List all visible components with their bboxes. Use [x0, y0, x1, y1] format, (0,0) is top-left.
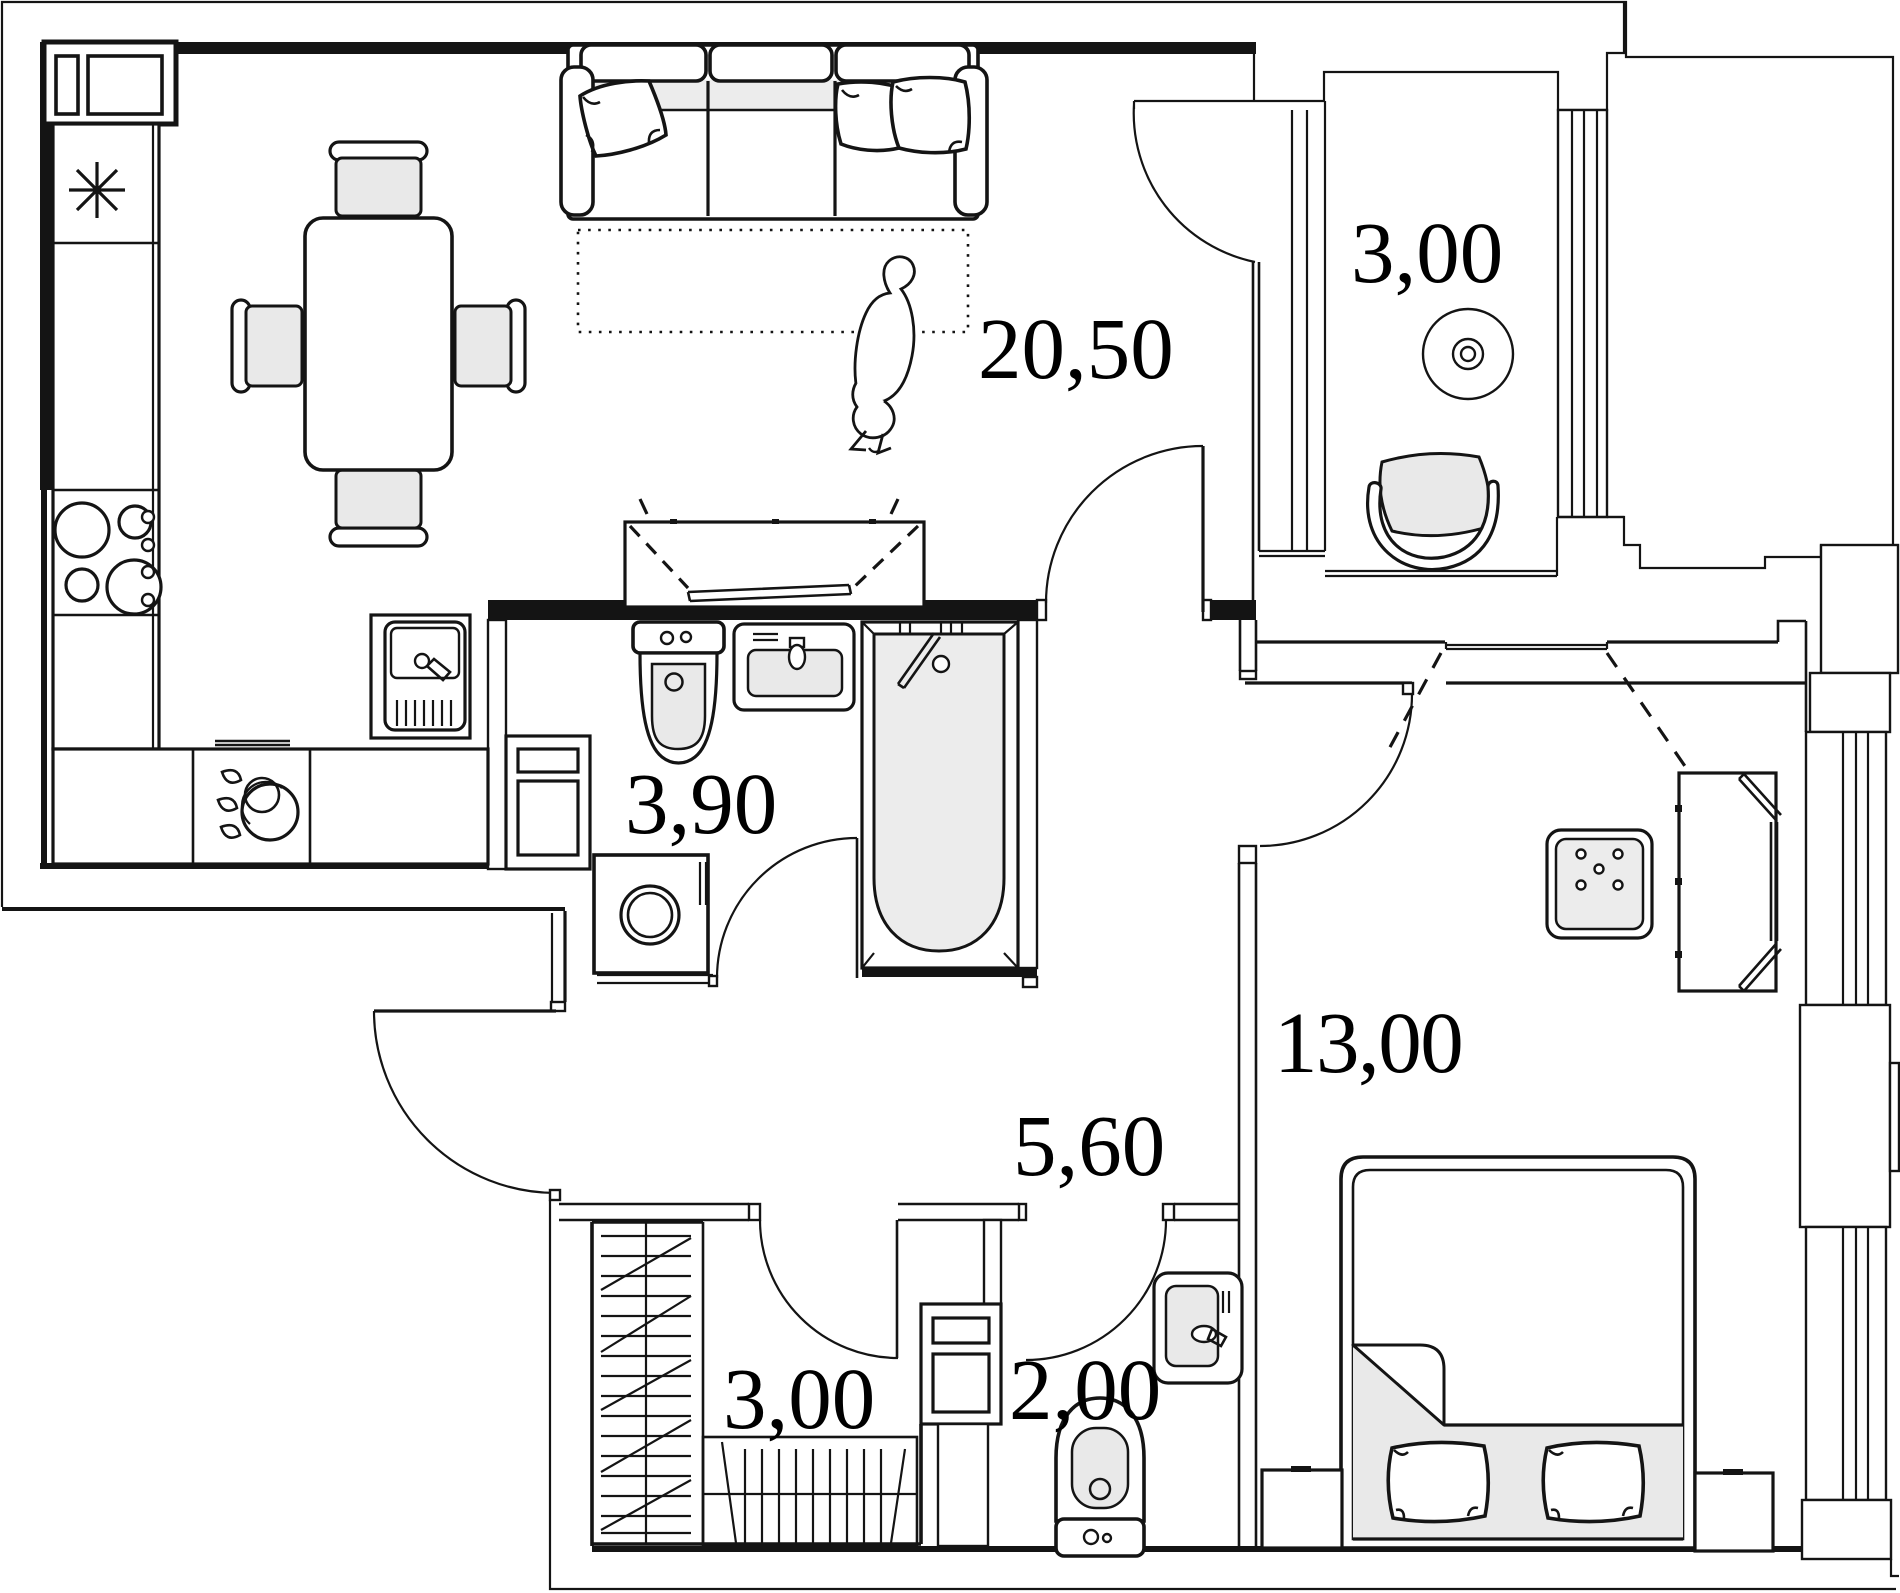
svg-text:3,00: 3,00: [723, 1350, 875, 1447]
svg-text:3,90: 3,90: [625, 755, 777, 852]
svg-text:3,00: 3,00: [1351, 204, 1503, 301]
svg-text:2,00: 2,00: [1009, 1341, 1161, 1438]
svg-text:5,60: 5,60: [1013, 1097, 1165, 1194]
svg-text:13,00: 13,00: [1274, 994, 1462, 1091]
svg-text:20,50: 20,50: [978, 300, 1174, 397]
